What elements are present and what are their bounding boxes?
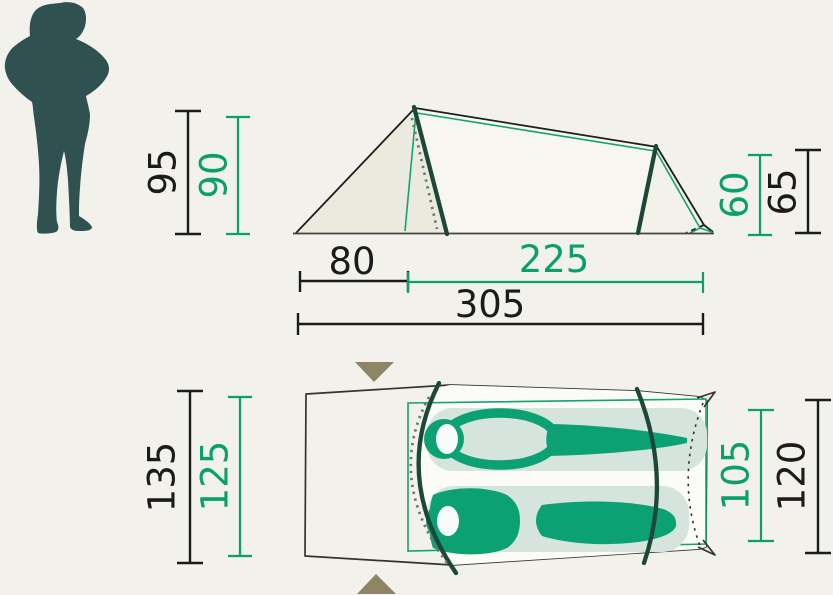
sleeper-face-top [436, 424, 458, 454]
tent-dimensions-diagram: 95 90 60 65 80 225 305 [0, 0, 833, 595]
dim-inner-length-label: 225 [519, 238, 590, 281]
dim-foot-width-outer-label: 120 [771, 441, 814, 512]
dim-foot-width-inner-label: 105 [715, 440, 758, 511]
sleeper-face-bottom [437, 506, 459, 536]
dim-rear-height-outer-label: 65 [762, 168, 805, 215]
dim-width-inner-label: 125 [194, 441, 237, 512]
dim-front-height-inner-label: 90 [193, 151, 236, 198]
dim-width-outer-label: 135 [141, 442, 184, 513]
dim-total-length-label: 305 [455, 283, 526, 326]
dim-vestibule-length-label: 80 [328, 240, 375, 283]
dim-front-height-outer-label: 95 [142, 148, 185, 195]
dim-rear-height-inner-label: 60 [714, 171, 757, 218]
